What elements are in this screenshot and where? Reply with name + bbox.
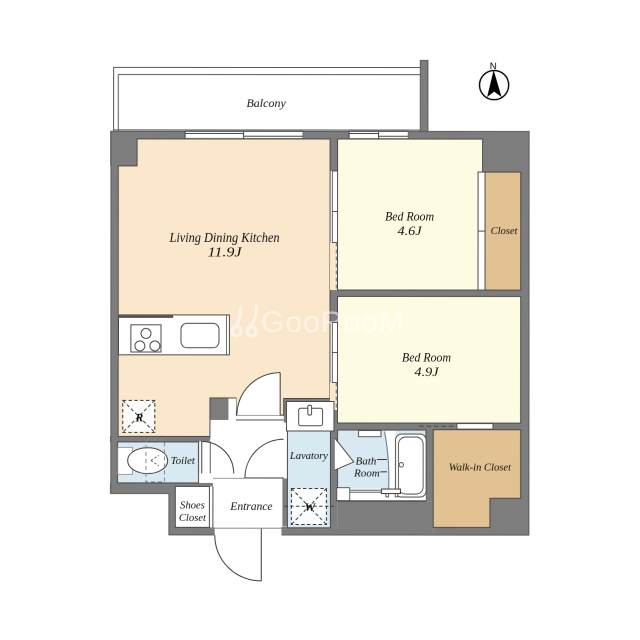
- svg-text:Bed Room: Bed Room: [385, 210, 434, 224]
- svg-text:W: W: [305, 500, 317, 514]
- svg-text:Entrance: Entrance: [229, 501, 272, 513]
- svg-text:Bath: Bath: [356, 456, 377, 468]
- svg-text:R: R: [135, 412, 144, 424]
- svg-text:Walk-in Closet: Walk-in Closet: [449, 463, 512, 474]
- svg-text:Closet: Closet: [491, 226, 519, 237]
- svg-text:4.6J: 4.6J: [398, 224, 423, 238]
- svg-text:Balcony: Balcony: [246, 96, 286, 110]
- svg-text:11.9J: 11.9J: [208, 245, 243, 260]
- svg-text:N: N: [490, 61, 497, 72]
- svg-text:4.9J: 4.9J: [414, 365, 439, 379]
- svg-text:Closet: Closet: [179, 513, 207, 524]
- svg-text:Room: Room: [353, 468, 380, 480]
- svg-text:Living Dining Kitchen: Living Dining Kitchen: [169, 231, 280, 246]
- svg-text:Lavatory: Lavatory: [289, 451, 328, 462]
- svg-text:Toilet: Toilet: [171, 455, 196, 467]
- svg-text:Bed Room: Bed Room: [402, 351, 451, 365]
- svg-text:Shoes: Shoes: [180, 500, 205, 511]
